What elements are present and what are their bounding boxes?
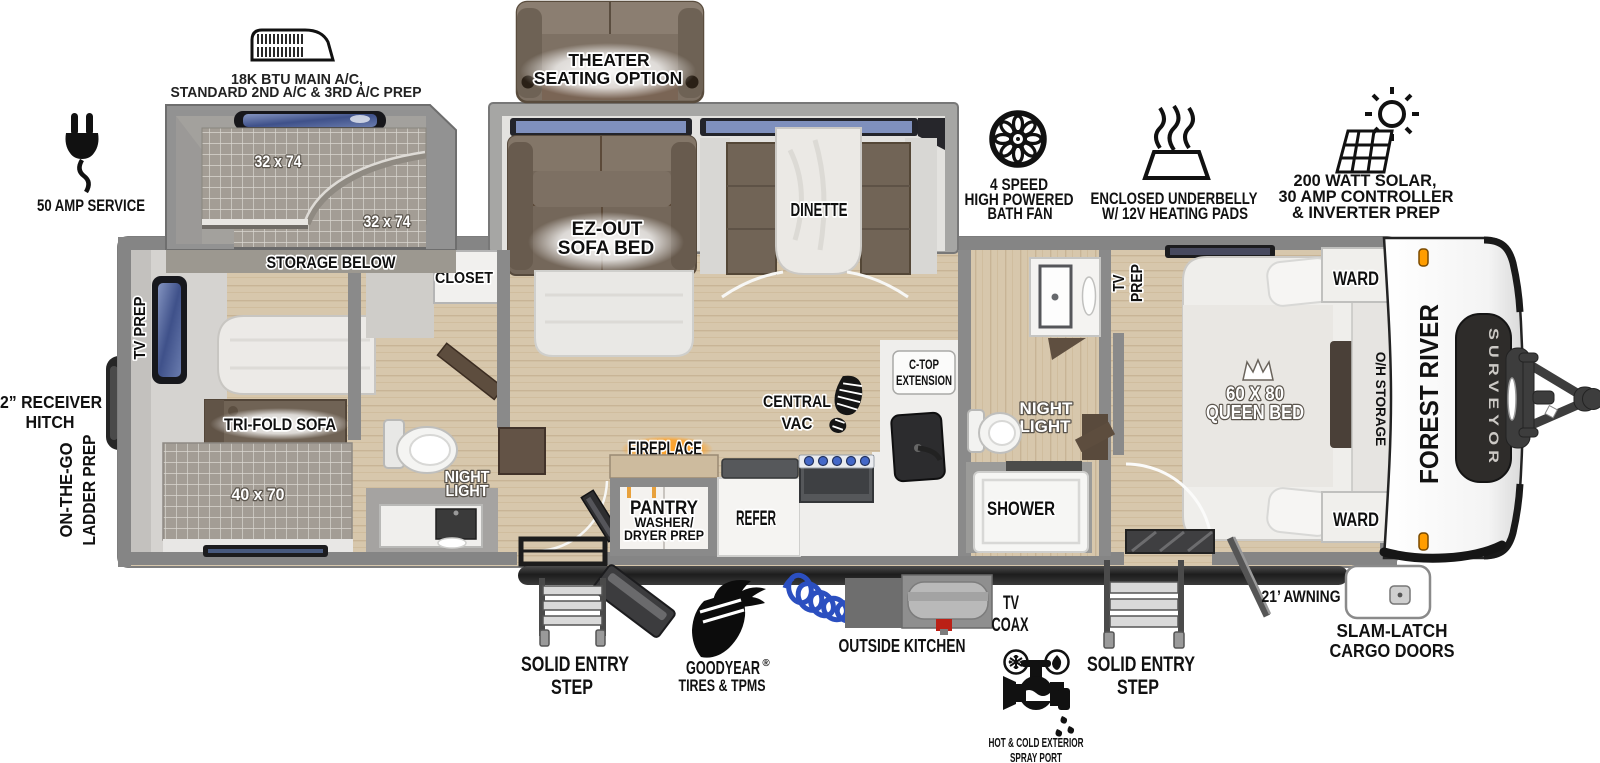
svg-text:GOODYEAR: GOODYEAR	[686, 658, 760, 678]
svg-text:SURVEYOR: SURVEYOR	[1486, 328, 1502, 468]
svg-text:PREP: PREP	[1129, 264, 1146, 302]
svg-text:QUEEN BED: QUEEN BED	[1206, 402, 1304, 424]
svg-text:SOLID ENTRY: SOLID ENTRY	[521, 653, 629, 676]
svg-text:CENTRAL: CENTRAL	[763, 392, 831, 411]
svg-text:SHOWER: SHOWER	[987, 499, 1055, 520]
svg-text:SOLID ENTRY: SOLID ENTRY	[1087, 653, 1195, 676]
svg-text:O/H STORAGE: O/H STORAGE	[1373, 352, 1388, 446]
svg-text:SEATING OPTION: SEATING OPTION	[534, 68, 682, 88]
svg-text:REFER: REFER	[736, 507, 776, 530]
svg-text:DINETTE: DINETTE	[791, 199, 848, 220]
svg-text:VAC: VAC	[782, 414, 813, 433]
svg-text:CARGO DOORS: CARGO DOORS	[1330, 641, 1455, 661]
svg-text:SPRAY PORT: SPRAY PORT	[1010, 750, 1062, 763]
svg-text:BATH FAN: BATH FAN	[988, 205, 1053, 223]
svg-text:& INVERTER PREP: & INVERTER PREP	[1292, 204, 1440, 222]
svg-text:NIGHT: NIGHT	[1020, 399, 1074, 418]
svg-text:WARD: WARD	[1333, 269, 1379, 290]
svg-text:LIGHT: LIGHT	[446, 483, 489, 500]
svg-text:FOREST RIVER: FOREST RIVER	[1414, 304, 1444, 484]
svg-text:COAX: COAX	[992, 615, 1029, 636]
svg-text:HOT & COLD EXTERIOR: HOT & COLD EXTERIOR	[989, 735, 1084, 750]
svg-text:21’ AWNING: 21’ AWNING	[1262, 587, 1341, 606]
svg-text:SOFA BED: SOFA BED	[558, 238, 654, 259]
svg-text:EZ-OUT: EZ-OUT	[572, 219, 643, 240]
svg-text:ON-THE-GO: ON-THE-GO	[56, 443, 76, 538]
svg-text:STANDARD 2ND A/C & 3RD A/C PRE: STANDARD 2ND A/C & 3RD A/C PREP	[171, 84, 422, 101]
svg-text:TV: TV	[1111, 274, 1128, 291]
svg-text:TV PREP: TV PREP	[132, 296, 149, 359]
svg-text:OUTSIDE KITCHEN: OUTSIDE KITCHEN	[839, 636, 966, 656]
svg-text:TV: TV	[1003, 593, 1019, 614]
svg-text:THEATER: THEATER	[568, 50, 650, 70]
svg-text:HITCH: HITCH	[26, 412, 75, 432]
svg-text:2” RECEIVER: 2” RECEIVER	[0, 392, 102, 412]
svg-text:TIRES & TPMS: TIRES & TPMS	[679, 676, 766, 695]
svg-text:WARD: WARD	[1333, 510, 1379, 531]
svg-text:STEP: STEP	[1117, 676, 1159, 699]
svg-text:DRYER PREP: DRYER PREP	[624, 528, 704, 543]
svg-text:50 AMP SERVICE: 50 AMP SERVICE	[37, 196, 145, 215]
svg-text:32 x 74: 32 x 74	[255, 153, 303, 171]
svg-text:40 x 70: 40 x 70	[232, 485, 285, 504]
svg-text:W/ 12V HEATING PADS: W/ 12V HEATING PADS	[1102, 205, 1248, 223]
svg-text:LIGHT: LIGHT	[1020, 417, 1072, 436]
svg-text:STEP: STEP	[551, 676, 593, 699]
svg-text:EXTENSION: EXTENSION	[896, 372, 952, 388]
svg-text:LADDER PREP: LADDER PREP	[79, 434, 99, 545]
svg-text:32 x 74: 32 x 74	[364, 213, 412, 231]
svg-text:STORAGE BELOW: STORAGE BELOW	[267, 253, 397, 272]
svg-text:TRI-FOLD SOFA: TRI-FOLD SOFA	[224, 415, 336, 434]
svg-text:®: ®	[762, 658, 770, 669]
svg-text:SLAM-LATCH: SLAM-LATCH	[1337, 621, 1448, 641]
svg-text:C-TOP: C-TOP	[909, 356, 939, 372]
